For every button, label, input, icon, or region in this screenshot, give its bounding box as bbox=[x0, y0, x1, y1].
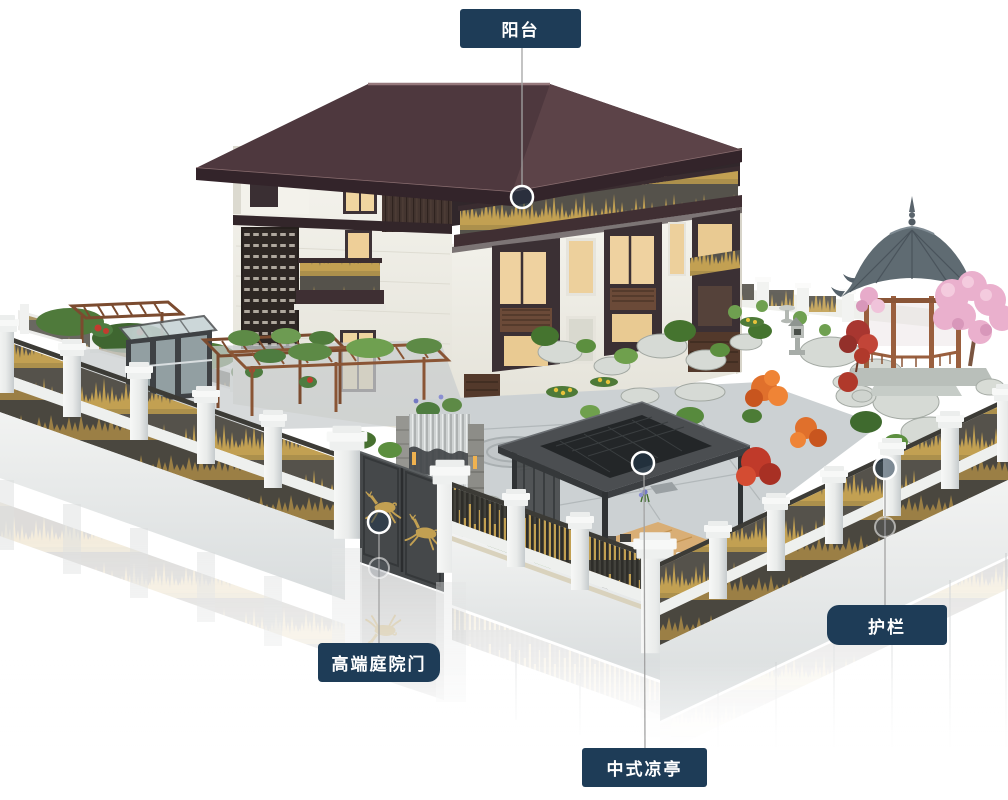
balcony-marker[interactable] bbox=[511, 186, 533, 208]
fountain bbox=[779, 305, 795, 323]
bottom-fade bbox=[0, 660, 1008, 800]
gate-marker[interactable] bbox=[368, 511, 390, 533]
pavilion-marker[interactable] bbox=[632, 452, 654, 474]
villa-illustration bbox=[0, 0, 1008, 800]
balcony-label-text: 阳台 bbox=[502, 16, 540, 41]
courtyard-gate-label-text: 高端庭院门 bbox=[332, 650, 427, 675]
side-balcony bbox=[294, 258, 386, 310]
guardrail-label-text: 护栏 bbox=[868, 613, 906, 638]
guardrail-label: 护栏 bbox=[827, 605, 947, 645]
fence-marker[interactable] bbox=[874, 457, 896, 479]
villa-annotated-render: 阳台 高端庭院门 中式凉亭 护栏 bbox=[0, 0, 1008, 800]
chinese-pavilion-label-text: 中式凉亭 bbox=[607, 755, 683, 780]
courtyard-gate-label: 高端庭院门 bbox=[318, 643, 440, 682]
chinese-pavilion-label: 中式凉亭 bbox=[582, 748, 707, 787]
balcony-label: 阳台 bbox=[460, 9, 581, 48]
